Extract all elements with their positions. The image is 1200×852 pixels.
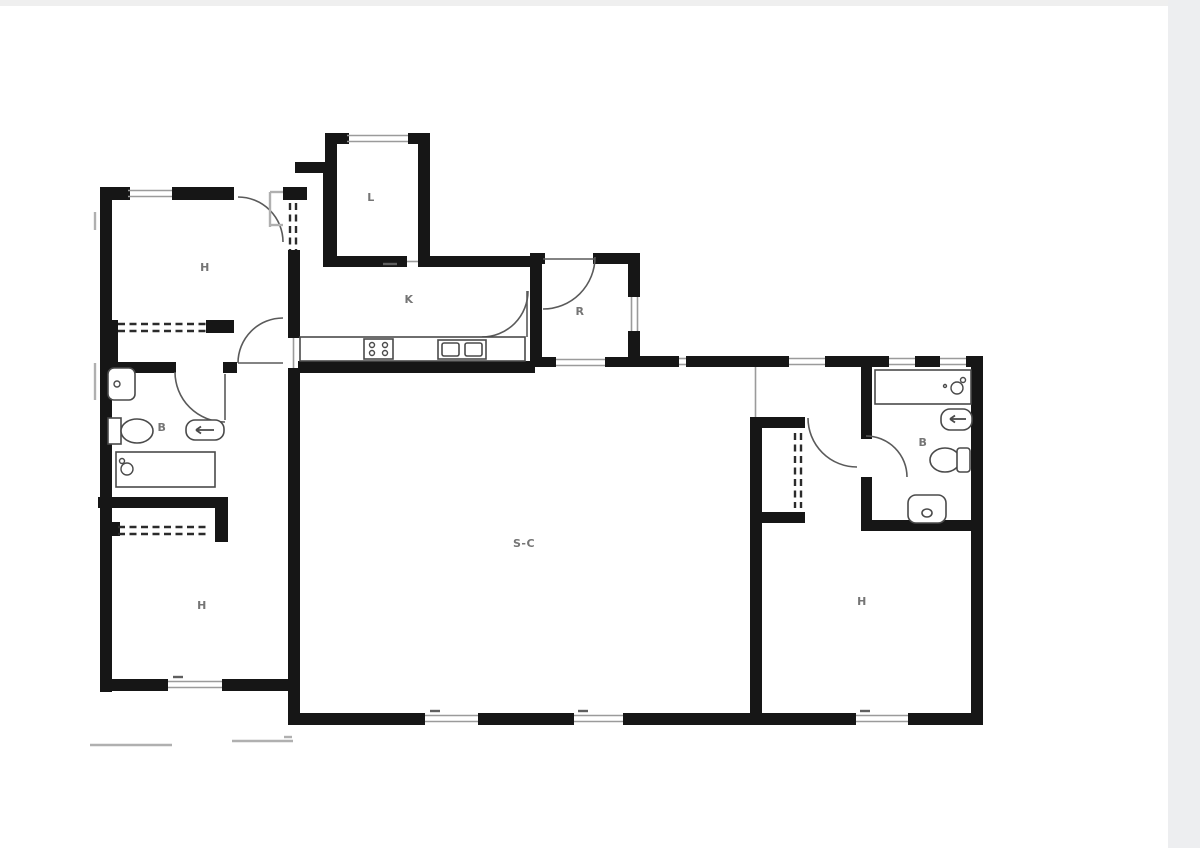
wall — [758, 512, 805, 523]
kitchen-sink-basin — [442, 343, 459, 356]
stove — [364, 339, 393, 359]
wall — [825, 356, 863, 367]
bidet-right-drain — [922, 509, 932, 517]
wall — [337, 256, 407, 267]
wall — [323, 173, 337, 267]
wall — [640, 356, 679, 367]
wall — [206, 320, 234, 333]
wall — [418, 133, 430, 267]
room-label-bedroom-bottomleft: H — [197, 599, 207, 612]
page: HLKRBS-CHBH — [0, 0, 1200, 848]
wall — [908, 713, 983, 725]
kitchen-counter — [300, 337, 525, 361]
wall — [325, 133, 349, 144]
wall — [863, 356, 889, 367]
wall — [686, 356, 755, 367]
wall — [861, 367, 872, 439]
room-label-laundry: L — [367, 191, 375, 204]
bathtub-right — [875, 370, 971, 404]
toilet-left-tank — [108, 418, 121, 444]
door-swing-bedroom-right — [808, 418, 857, 467]
floor-plan-svg: HLKRBS-CHBH — [0, 0, 1200, 848]
wall — [530, 253, 542, 367]
wall — [222, 679, 300, 691]
toilet-right-bowl — [930, 448, 960, 472]
door-swing-entrance — [543, 257, 595, 309]
wall — [605, 357, 640, 367]
toilet-right-tank — [957, 448, 970, 472]
room-label-living-dining: S-C — [513, 537, 535, 550]
wall — [750, 417, 762, 725]
toilet-left-bowl — [121, 419, 153, 443]
room-label-bath-right: B — [919, 436, 928, 449]
wall — [750, 417, 805, 428]
wall — [755, 356, 789, 367]
wall — [288, 368, 300, 725]
door-swing-hall-living — [238, 318, 283, 363]
wall — [98, 497, 228, 508]
door-swing-bath-left — [175, 372, 225, 422]
room-label-kitchen: K — [404, 293, 413, 306]
door-swing-bath-right — [866, 436, 907, 477]
wall — [478, 713, 574, 725]
wall — [971, 356, 983, 724]
wall — [223, 362, 237, 373]
wall — [288, 250, 300, 338]
room-label-entry: R — [576, 305, 585, 318]
bidet-left — [108, 368, 135, 400]
room-label-bedroom-right: H — [857, 595, 867, 608]
door-swing-bedroom-topleft — [238, 197, 283, 242]
wall — [750, 713, 856, 725]
door-swing-kitchen — [482, 291, 528, 337]
wall — [215, 497, 228, 542]
wall — [100, 679, 168, 691]
kitchen-sink-basin — [465, 343, 482, 356]
wall — [283, 187, 307, 200]
wall — [172, 187, 234, 200]
wall — [288, 713, 425, 725]
bathtub-left — [116, 452, 215, 487]
floor-plan: HLKRBS-CHBH — [0, 0, 1200, 848]
wall — [298, 361, 535, 373]
wall — [430, 256, 535, 267]
room-label-bath-left: B — [158, 421, 167, 434]
wall — [628, 253, 640, 297]
room-label-bedroom-topleft: H — [200, 261, 210, 274]
wall — [623, 713, 750, 725]
wall — [915, 356, 940, 367]
wall — [295, 162, 337, 173]
wall — [106, 320, 118, 365]
